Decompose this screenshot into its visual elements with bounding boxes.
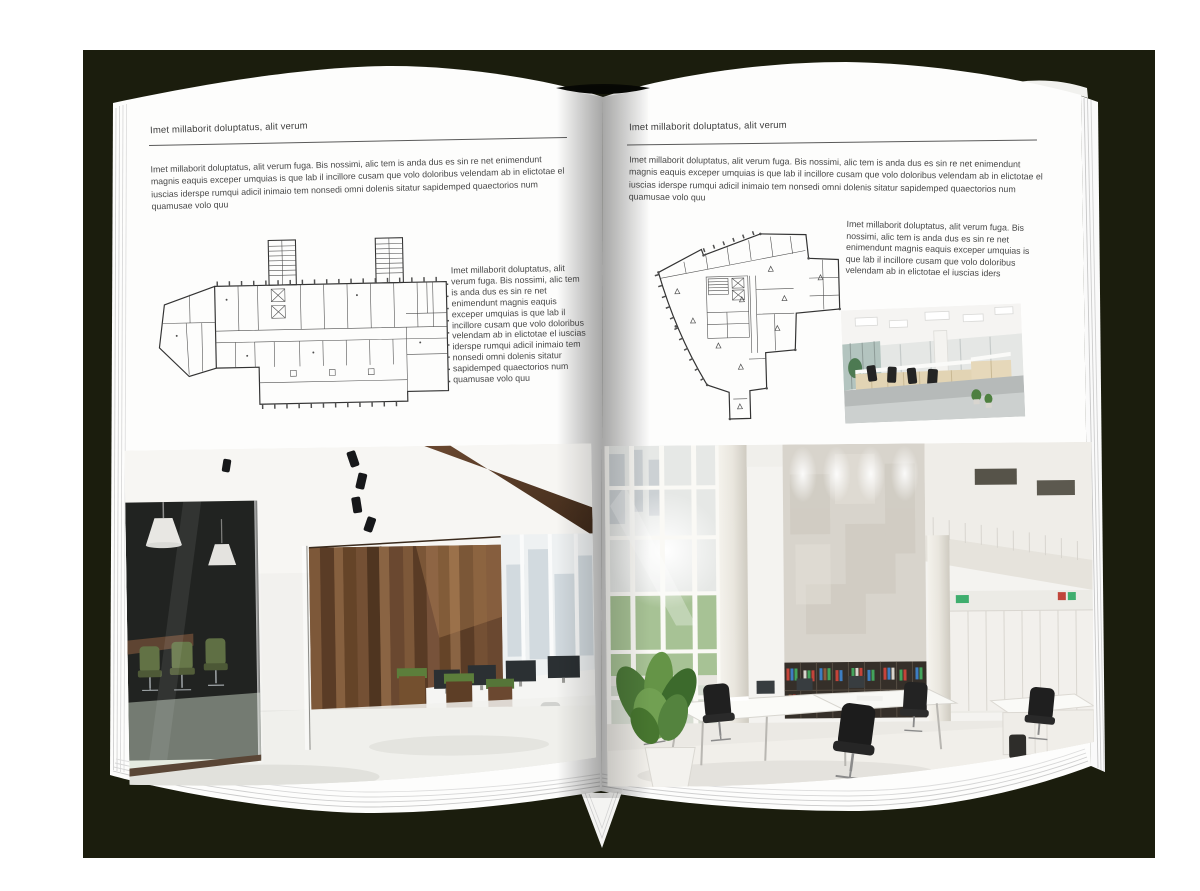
floor-plan-right: [643, 216, 847, 427]
right-intro-paragraph: Imet millaborit doluptatus, alit verum f…: [629, 153, 1046, 208]
floor-plan-left: [155, 224, 451, 422]
photo-office-white-interior: [604, 442, 1094, 792]
brochure-mockup: Imet millaborit doluptatus, alit verum I…: [0, 0, 1200, 891]
right-body-text: Imet millaborit doluptatus, alit verum f…: [845, 219, 1034, 281]
photo-office-small-image: [841, 303, 1025, 423]
photo-office-wood-interior-image: [124, 443, 596, 790]
floor-plan-right-drawing: [643, 216, 847, 427]
photo-office-small: [841, 303, 1025, 423]
floor-plan-left-drawing: [155, 224, 451, 422]
photo-office-white-interior-image: [604, 442, 1094, 792]
photo-office-wood-interior: [124, 443, 596, 790]
left-side-column-text: Imet millaborit doluptatus, alit verum f…: [451, 263, 587, 386]
